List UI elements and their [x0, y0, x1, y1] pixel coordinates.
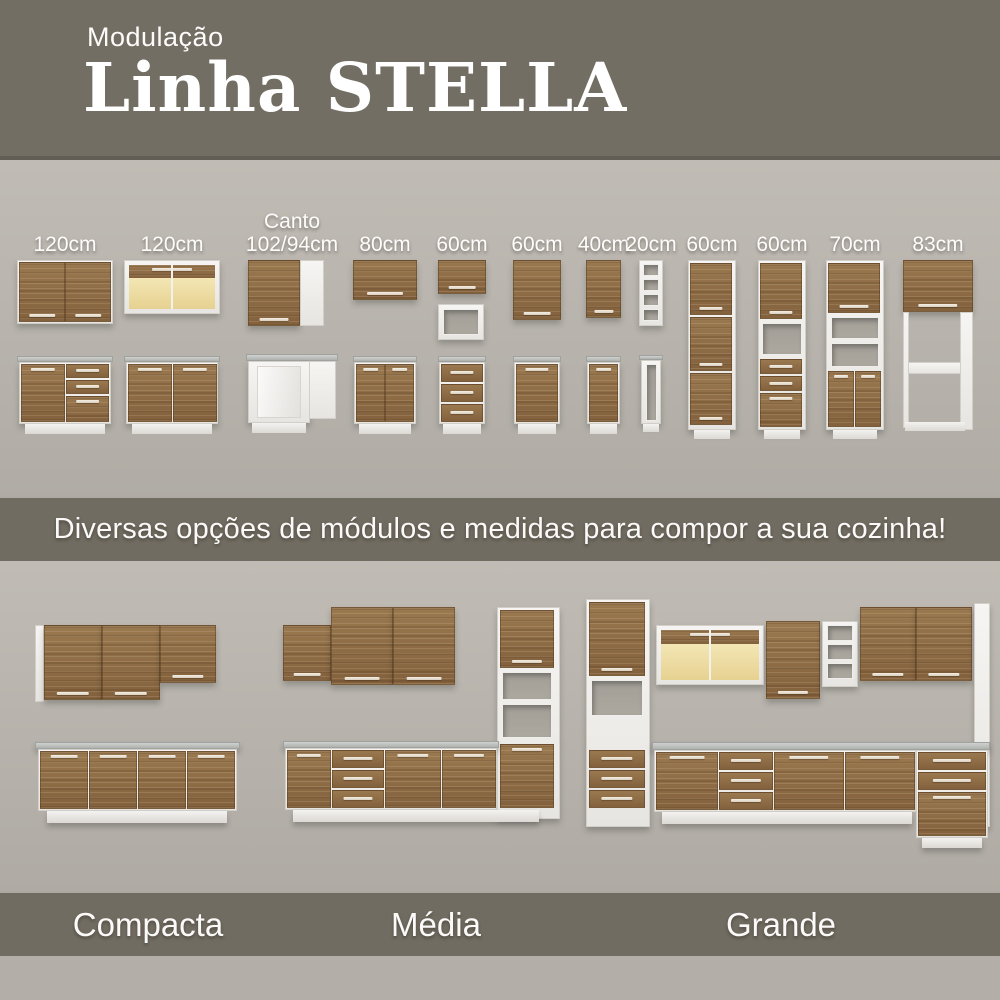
white-shelf [909, 362, 960, 374]
open-niche [643, 309, 659, 321]
module-graphic [639, 258, 663, 443]
base-cabinet [126, 362, 218, 424]
base-cabinet [514, 362, 560, 424]
open-shelf [831, 343, 879, 367]
wood-door [331, 607, 393, 685]
base-cabinet-run [285, 748, 497, 810]
module-size-label: 80cm [353, 206, 417, 256]
appliance-niche [762, 323, 802, 355]
module-size-label: 20cm [639, 206, 663, 256]
countertop [652, 742, 990, 750]
drawer [66, 364, 109, 378]
module-graphic [246, 258, 338, 443]
plinth [293, 810, 539, 822]
plinth [252, 423, 306, 433]
drawer [332, 770, 384, 788]
open-shelf [502, 704, 552, 738]
module-size-label: 60cm [438, 206, 486, 256]
plinth [518, 424, 556, 434]
drawer [332, 790, 384, 808]
plinth [132, 424, 212, 434]
wood-door [760, 263, 802, 319]
wood-door [845, 752, 915, 810]
wood-door [760, 393, 802, 427]
base-cabinet-run [38, 749, 237, 811]
wood-door [690, 317, 732, 371]
module-size-label: 60cm [513, 206, 561, 256]
header-band: Modulação Linha STELLA [0, 0, 1000, 160]
wood-door [283, 625, 331, 681]
open-niche [827, 625, 853, 641]
plinth [47, 811, 227, 823]
wood-door [656, 752, 718, 810]
tall-tower-cabinet [758, 260, 806, 430]
plinth [25, 424, 105, 434]
module-graphic [688, 258, 736, 443]
drawer [589, 750, 645, 768]
size-text: 80cm [359, 233, 410, 256]
module-size-label: 120cm [124, 206, 220, 256]
side-panel [960, 312, 973, 430]
plinth [359, 424, 411, 434]
page: Modulação Linha STELLA 120cm [0, 0, 1000, 1000]
module-size-label: 83cm [903, 206, 973, 256]
plinth [905, 422, 965, 431]
size-text: 60cm [686, 233, 737, 256]
door-seam [709, 630, 711, 680]
base-cabinet-run [654, 750, 916, 812]
wood-door [66, 396, 109, 422]
module-column-9: 60cm [688, 206, 736, 443]
tall-shelf-cabinet [826, 260, 884, 430]
module-column-7: 40cm [586, 206, 621, 443]
appliance-niche [591, 680, 643, 716]
glass-door [129, 265, 215, 309]
size-text: 60cm [756, 233, 807, 256]
module-size-label: Canto 102/94cm [246, 206, 338, 256]
plinth [764, 430, 800, 439]
narrow-base-unit [641, 360, 661, 424]
kitchen-labels-band: Compacta Média Grande [0, 893, 1000, 956]
corner-base-cabinet [248, 361, 310, 423]
open-box-module [438, 304, 484, 340]
base-cabinet [354, 362, 416, 424]
wood-door [356, 364, 385, 422]
wood-door [690, 263, 732, 315]
wood-door [766, 621, 820, 699]
base-cabinet [19, 362, 111, 424]
drawer [332, 750, 384, 768]
size-text: 83cm [912, 233, 963, 256]
size-text: 40cm [578, 233, 629, 256]
countertop [35, 742, 240, 749]
plinth [590, 424, 617, 434]
size-text: 60cm [511, 233, 562, 256]
module-size-label: 60cm [758, 206, 806, 256]
glass-wall-cabinet [124, 260, 220, 314]
drawer [441, 384, 483, 402]
module-column-11: 70cm [826, 206, 884, 443]
wood-door [916, 607, 972, 681]
module-graphic [586, 258, 621, 443]
plinth [662, 812, 912, 824]
wall-cabinet [586, 260, 621, 318]
wood-door [918, 792, 986, 836]
drawer [66, 380, 109, 394]
wood-door [385, 364, 414, 422]
wood-door [500, 610, 554, 668]
size-text: 120cm [33, 233, 96, 256]
kitchen-compacta [35, 625, 240, 825]
module-column-1: 120cm [17, 206, 113, 443]
module-graphic [17, 258, 113, 443]
module-graphic [758, 258, 806, 443]
plinth [643, 424, 659, 432]
module-graphic [438, 258, 486, 443]
base-cabinet-return [916, 750, 988, 838]
module-column-2: 120cm [124, 206, 220, 443]
wood-door [855, 371, 881, 427]
wood-door [128, 364, 172, 422]
wall-cabinet-flap [353, 260, 417, 300]
page-title: Linha STELLA [83, 48, 627, 127]
wood-door [828, 263, 880, 313]
wood-door [860, 607, 916, 681]
wood-door [690, 373, 732, 425]
wood-door [442, 750, 496, 808]
corner-open-shelf [822, 621, 858, 687]
wood-door [187, 751, 235, 809]
door-seam [171, 265, 173, 309]
tall-pantry-cabinet [688, 260, 736, 430]
wood-door [102, 625, 160, 700]
drawer [918, 772, 986, 790]
wood-door [160, 625, 216, 683]
wood-door [40, 751, 88, 809]
wood-door [44, 625, 102, 700]
module-column-8: 20cm [639, 206, 663, 443]
drawer [760, 359, 802, 374]
countertop [246, 354, 338, 361]
kitchen-label-media: Média [391, 906, 481, 944]
module-graphic [353, 258, 417, 443]
plinth [833, 430, 877, 439]
corner-wall-cabinet-door [248, 260, 300, 326]
wood-door [21, 364, 65, 422]
corner-base-return [310, 361, 336, 419]
plinth [694, 430, 730, 439]
drawer [441, 404, 483, 422]
plinth [443, 424, 481, 434]
wood-door [287, 750, 331, 808]
kitchen-grande [586, 599, 990, 849]
wood-door [173, 364, 217, 422]
countertop [283, 741, 499, 748]
wood-door [516, 364, 558, 422]
tall-tower [586, 599, 650, 827]
open-niche [827, 663, 853, 679]
white-door [257, 366, 301, 418]
fridge-top-cabinet [903, 260, 973, 312]
open-niche [643, 264, 659, 276]
open-niche [443, 309, 479, 335]
tagline-band: Diversas opções de módulos e medidas par… [0, 498, 1000, 561]
kitchen-label-grande: Grande [726, 906, 836, 944]
wood-door [138, 751, 186, 809]
open-niche [643, 279, 659, 291]
wood-door [500, 744, 554, 808]
drawer [760, 376, 802, 391]
wood-door [828, 371, 854, 427]
wood-door [393, 607, 455, 685]
module-column-3: Canto 102/94cm [246, 206, 338, 443]
open-niche [643, 294, 659, 306]
kitchens-panel [0, 561, 1000, 893]
module-graphic [513, 258, 561, 443]
module-graphic [124, 258, 220, 443]
wall-cabinet [513, 260, 561, 320]
open-shelf [502, 672, 552, 700]
drawer [441, 364, 483, 382]
wall-cabinet [17, 260, 113, 324]
wood-door [89, 751, 137, 809]
corner-return-panel [300, 260, 324, 326]
module-column-4: 80cm [353, 206, 417, 443]
module-size-label: 70cm [826, 206, 884, 256]
size-text: 60cm [436, 233, 487, 256]
plinth [922, 838, 982, 848]
module-column-6: 60cm [513, 206, 561, 443]
size-text: 102/94cm [246, 233, 338, 256]
module-column-5: 60cm [438, 206, 486, 443]
kitchen-media [283, 607, 560, 825]
module-size-label: 60cm [688, 206, 736, 256]
open-shelf-tower [639, 260, 663, 326]
drawer-base-cabinet [439, 362, 485, 424]
side-panel [35, 625, 44, 702]
modules-panel: 120cm 120cm [0, 160, 1000, 498]
open-niche [646, 364, 657, 421]
kitchen-label-compacta: Compacta [73, 906, 223, 944]
wood-door [774, 752, 844, 810]
module-graphic [826, 258, 884, 443]
drawer [719, 752, 773, 770]
drawer [589, 790, 645, 808]
glass-door [661, 630, 759, 680]
size-text: 120cm [140, 233, 203, 256]
module-column-12: 83cm [903, 206, 973, 443]
drawer [719, 772, 773, 790]
size-text: 20cm [625, 233, 676, 256]
module-graphic [903, 258, 973, 443]
glass-wall-cabinet [656, 625, 764, 685]
footer-strip [0, 956, 1000, 1000]
wood-door [385, 750, 441, 808]
module-size-label: 120cm [17, 206, 113, 256]
module-column-10: 60cm [758, 206, 806, 443]
open-niche [827, 644, 853, 660]
size-text: 70cm [829, 233, 880, 256]
wood-door [589, 364, 618, 422]
wall-cabinet-flap [438, 260, 486, 294]
open-shelf [831, 317, 879, 339]
tall-tower [497, 607, 560, 819]
drawer [589, 770, 645, 788]
module-size-label: 40cm [586, 206, 621, 256]
size-prefix-text: Canto [264, 210, 320, 233]
drawer [918, 752, 986, 770]
wood-door [589, 602, 645, 676]
tagline-text: Diversas opções de módulos e medidas par… [54, 513, 947, 546]
wood-door [19, 262, 65, 322]
wood-door [65, 262, 111, 322]
drawer [719, 792, 773, 810]
base-cabinet [587, 362, 620, 424]
